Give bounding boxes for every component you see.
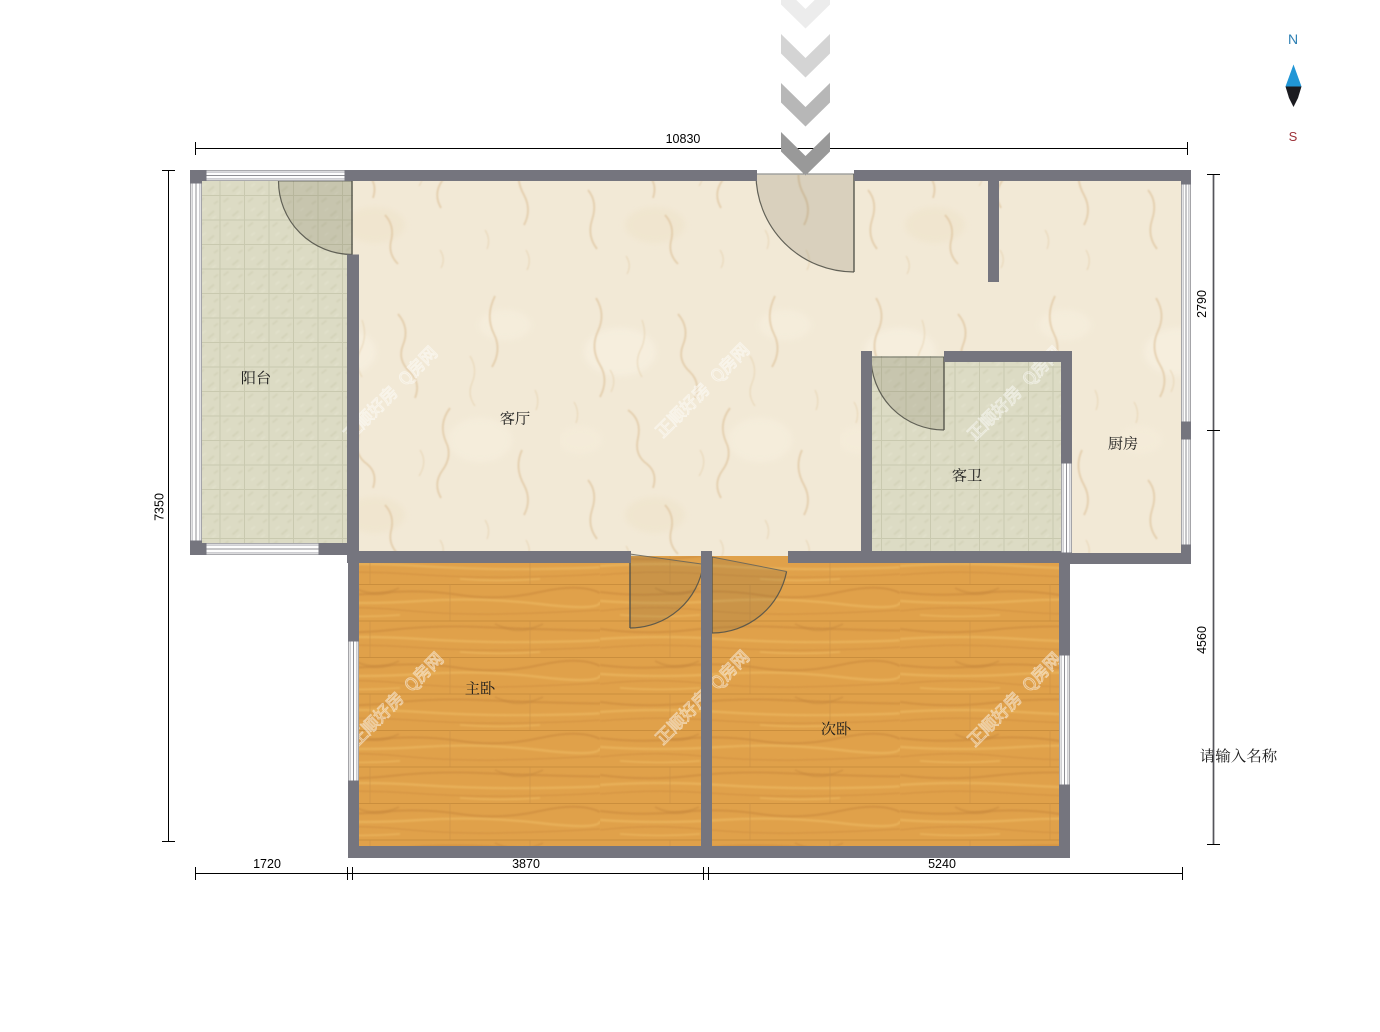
svg-text:2790: 2790 (1195, 290, 1209, 318)
svg-text:5240: 5240 (928, 857, 956, 871)
svg-text:3870: 3870 (512, 857, 540, 871)
svg-text:7350: 7350 (153, 493, 167, 521)
svg-text:S: S (1289, 129, 1298, 144)
svg-text:N: N (1288, 31, 1298, 47)
svg-text:4560: 4560 (1195, 626, 1209, 654)
svg-text:1720: 1720 (253, 857, 281, 871)
svg-text:10830: 10830 (666, 132, 701, 146)
